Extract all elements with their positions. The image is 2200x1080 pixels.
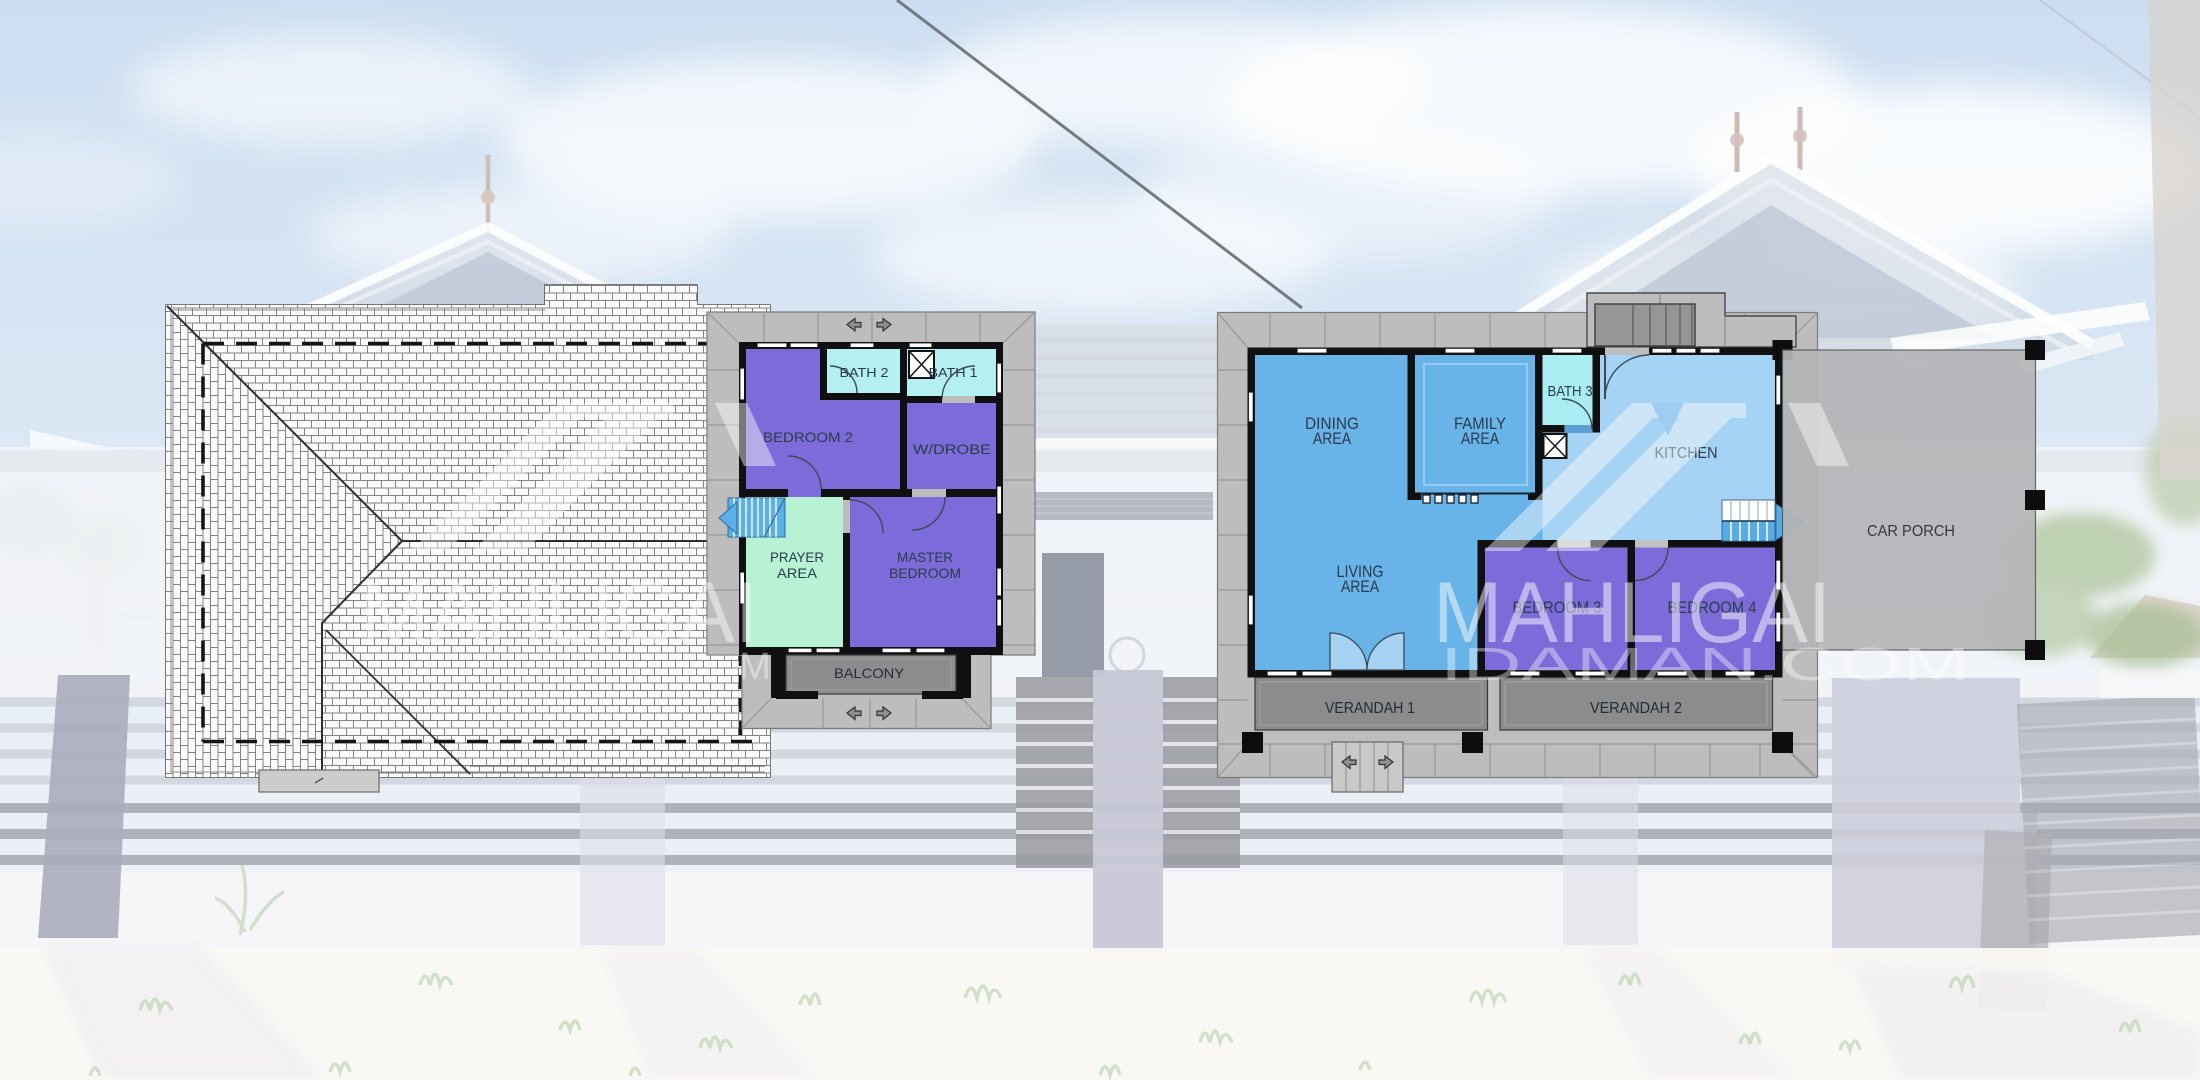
svg-text:VERANDAH 2: VERANDAH 2 bbox=[1590, 700, 1682, 717]
svg-text:BEDROOM 2: BEDROOM 2 bbox=[763, 429, 853, 445]
svg-text:BALCONY: BALCONY bbox=[834, 666, 904, 681]
svg-text:VERANDAH 1: VERANDAH 1 bbox=[1325, 700, 1415, 717]
svg-text:BATH 2: BATH 2 bbox=[840, 365, 889, 380]
svg-text:AREA: AREA bbox=[1461, 429, 1500, 448]
svg-text:MAHLIGAI: MAHLIGAI bbox=[360, 565, 758, 661]
svg-text:AREA: AREA bbox=[777, 565, 818, 581]
svg-text:CAR PORCH: CAR PORCH bbox=[1867, 523, 1955, 540]
svg-text:BATH 3: BATH 3 bbox=[1548, 383, 1593, 400]
svg-text:BEDROOM: BEDROOM bbox=[889, 565, 961, 581]
svg-text:MASTER: MASTER bbox=[897, 549, 953, 565]
svg-text:PRAYER: PRAYER bbox=[770, 549, 824, 565]
svg-text:BATH 1: BATH 1 bbox=[929, 365, 978, 380]
svg-text:IDAMAN.COM: IDAMAN.COM bbox=[1440, 638, 1970, 690]
svg-text:AREA: AREA bbox=[1341, 577, 1380, 596]
svg-text:AREA: AREA bbox=[1313, 429, 1352, 448]
svg-text:M: M bbox=[739, 646, 771, 688]
svg-text:W/DROBE: W/DROBE bbox=[913, 441, 991, 457]
